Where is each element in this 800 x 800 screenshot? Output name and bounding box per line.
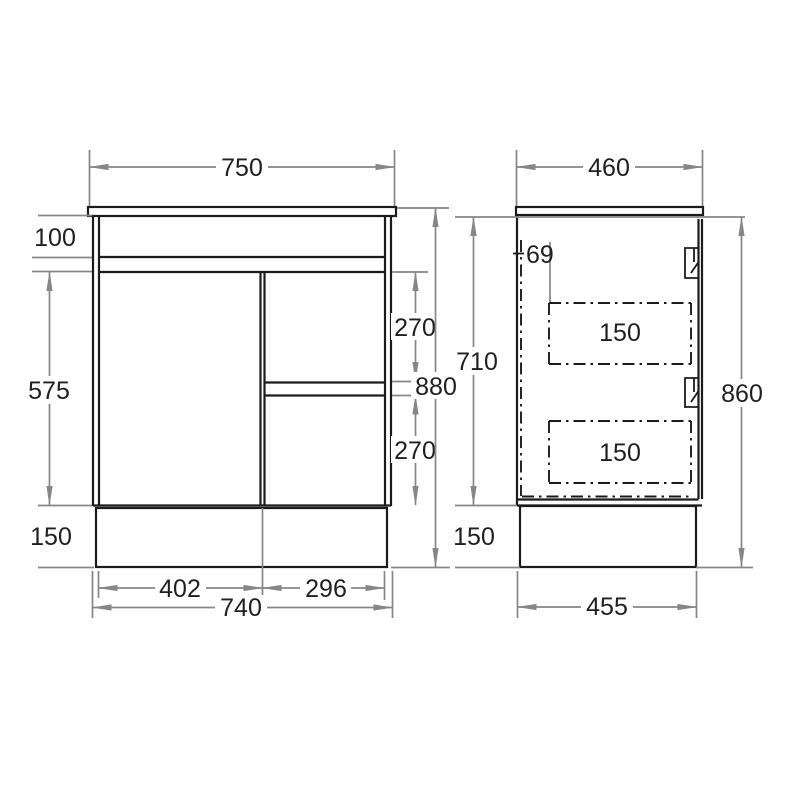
front-door-width-label: 402: [159, 575, 201, 603]
side-door-panel: [699, 219, 703, 499]
front-door-height-label: 575: [28, 377, 70, 405]
front-countertop-width-label: 750: [221, 154, 263, 182]
front-countertop: [88, 207, 396, 216]
dim-side-carcass-height: 710: [451, 217, 502, 505]
front-view: [88, 207, 396, 567]
vanity-dimension-drawing: 750 100 575 150 270: [0, 0, 800, 800]
dim-front-top-band-height: 100: [32, 216, 92, 272]
dim-front-drawers-width: 296: [263, 571, 385, 603]
front-cabinet-width-label: 740: [220, 594, 262, 622]
side-view: 69 150 150: [513, 207, 703, 567]
dim-side-countertop-depth: 460: [517, 150, 703, 206]
side-lower-handle: [685, 378, 699, 407]
dim-side-plinth-depth: 455: [518, 571, 697, 621]
front-lower-drawer-height-label: 270: [394, 437, 436, 465]
dim-side-plinth-height: 150: [453, 506, 520, 568]
side-kickboard: [520, 506, 696, 567]
dim-front-upper-drawer-height: 270: [391, 272, 441, 382]
side-upper-handle: [685, 248, 699, 278]
dim-front-lower-drawer-height: 270: [391, 396, 441, 506]
side-plinth-height-label: 150: [453, 523, 495, 551]
side-carcass-height-label: 710: [456, 348, 498, 376]
side-plinth-depth-label: 455: [586, 593, 628, 621]
side-upper-drawer-box: 150: [549, 303, 691, 364]
front-overall-height-label: 880: [415, 373, 457, 401]
side-drawer-setback-label: 69: [526, 241, 554, 269]
front-drawer-split: [265, 383, 386, 396]
front-door-divider: [261, 272, 265, 506]
dim-front-plinth-height: 150: [30, 506, 94, 568]
side-countertop: [516, 207, 703, 215]
side-body-bottom: [517, 500, 702, 506]
side-upper-drawer-box-label: 150: [599, 319, 641, 347]
side-setback-mark: 69: [513, 241, 554, 303]
front-top-band-height-label: 100: [34, 224, 76, 252]
dim-side-overall-height: 860: [696, 217, 767, 568]
dim-front-countertop-width: 750: [90, 150, 395, 206]
front-drawers-width-label: 296: [305, 575, 347, 603]
side-countertop-depth-label: 460: [588, 154, 630, 182]
front-top-band: [99, 257, 385, 272]
side-lower-drawer-box-label: 150: [599, 439, 641, 467]
front-plinth-height-label: 150: [30, 523, 72, 551]
dimension-drawing-page: 750 100 575 150 270: [0, 0, 800, 800]
front-kickboard: [96, 508, 387, 567]
side-overall-height-label: 860: [721, 380, 763, 408]
front-upper-drawer-height-label: 270: [394, 314, 436, 342]
dim-front-overall-height: 880: [391, 208, 461, 568]
front-side-panels: [93, 216, 391, 506]
dim-front-door-height: 575: [24, 272, 75, 505]
side-lower-drawer-box: 150: [549, 421, 691, 483]
